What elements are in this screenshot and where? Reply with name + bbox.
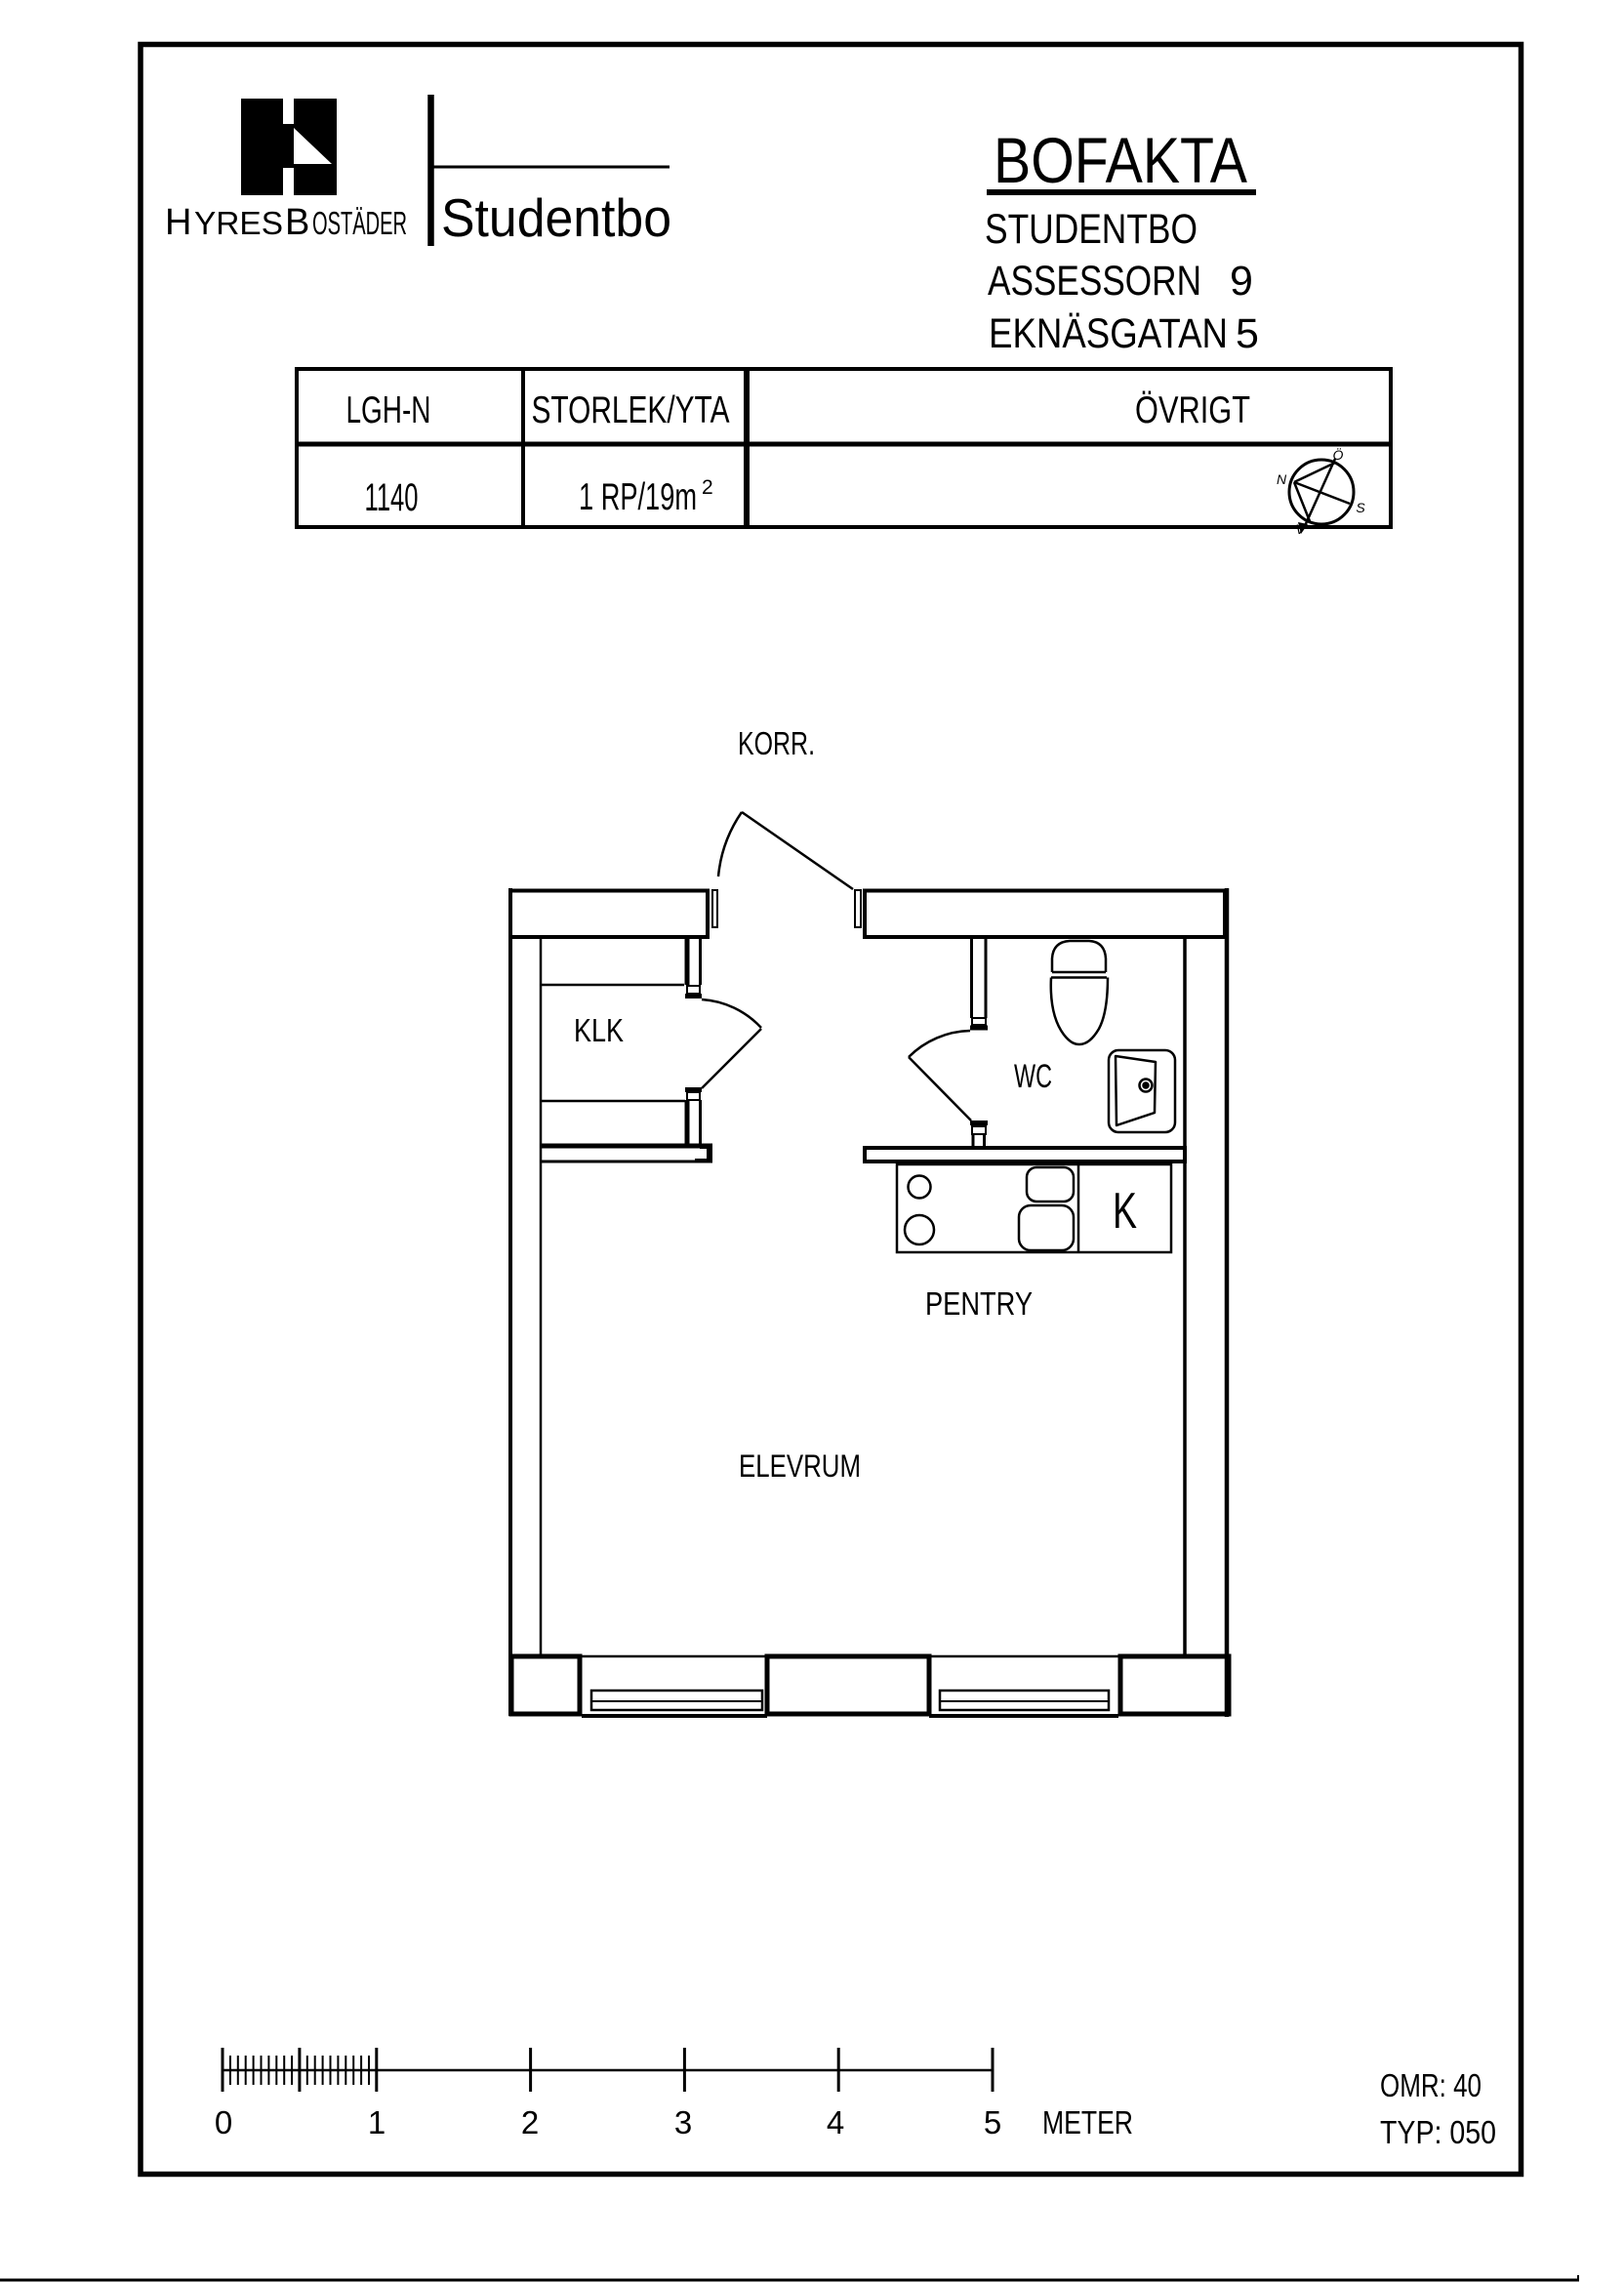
svg-text:2: 2 [521, 2104, 539, 2140]
svg-text:H: H [165, 202, 191, 243]
svg-text:N: N [1277, 471, 1287, 487]
svg-text:ELEVRUM: ELEVRUM [739, 1448, 861, 1484]
svg-text:PENTRY: PENTRY [925, 1285, 1033, 1322]
svg-text:4: 4 [827, 2104, 844, 2140]
svg-text:YRES: YRES [194, 206, 283, 242]
svg-text:OSTÄDER: OSTÄDER [312, 206, 407, 242]
svg-text:BOFAKTA: BOFAKTA [994, 125, 1247, 196]
svg-text:B: B [285, 202, 309, 243]
svg-text:WC: WC [1014, 1058, 1052, 1095]
svg-text:TYP: 050: TYP: 050 [1380, 2114, 1496, 2150]
svg-text:KORR.: KORR. [738, 725, 815, 761]
svg-text:STORLEK/YTA: STORLEK/YTA [532, 389, 730, 431]
svg-text:1: 1 [368, 2104, 386, 2140]
svg-text:0: 0 [215, 2104, 232, 2140]
svg-text:ÖVRIGT: ÖVRIGT [1135, 389, 1250, 431]
svg-text:5: 5 [1236, 310, 1259, 357]
svg-text:1 RP/19m: 1 RP/19m [579, 476, 697, 518]
svg-text:2: 2 [702, 476, 713, 499]
svg-text:1140: 1140 [365, 476, 419, 519]
svg-text:S: S [1356, 500, 1365, 515]
svg-text:5: 5 [984, 2104, 1001, 2140]
svg-text:OMR: 40: OMR: 40 [1380, 2067, 1482, 2103]
svg-text:9: 9 [1230, 258, 1253, 305]
svg-text:STUDENTBO: STUDENTBO [985, 206, 1198, 253]
svg-text:ASSESSORN: ASSESSORN [988, 258, 1201, 305]
svg-text:METER: METER [1042, 2104, 1133, 2140]
svg-text:LGH-N: LGH-N [346, 389, 431, 431]
svg-text:KLK: KLK [574, 1012, 624, 1048]
svg-text:Studentbo: Studentbo [441, 187, 671, 248]
svg-text:3: 3 [674, 2104, 692, 2140]
svg-text:K: K [1113, 1183, 1137, 1240]
svg-text:Ö: Ö [1333, 446, 1344, 463]
svg-text:EKNÄSGATAN: EKNÄSGATAN [989, 310, 1228, 357]
